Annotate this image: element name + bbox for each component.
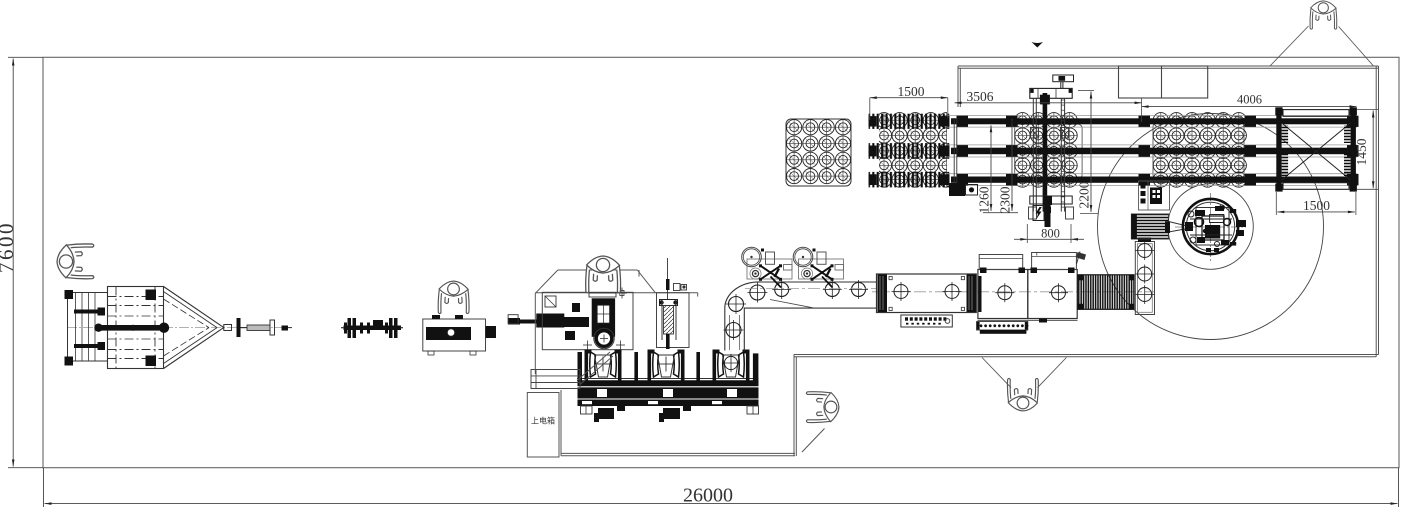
svg-text:4006: 4006 (1237, 93, 1262, 107)
svg-text:1450: 1450 (1354, 138, 1369, 165)
svg-text:800: 800 (1041, 227, 1060, 241)
svg-text:1500: 1500 (898, 84, 925, 99)
svg-text:1500: 1500 (1303, 198, 1330, 213)
svg-text:2300: 2300 (998, 186, 1013, 213)
svg-text:7600: 7600 (0, 221, 18, 273)
svg-text:上电箱: 上电箱 (531, 416, 555, 426)
svg-text:2200: 2200 (1077, 181, 1092, 208)
svg-text:3506: 3506 (967, 89, 994, 104)
svg-text:26000: 26000 (683, 485, 733, 507)
svg-text:1260: 1260 (977, 186, 992, 213)
